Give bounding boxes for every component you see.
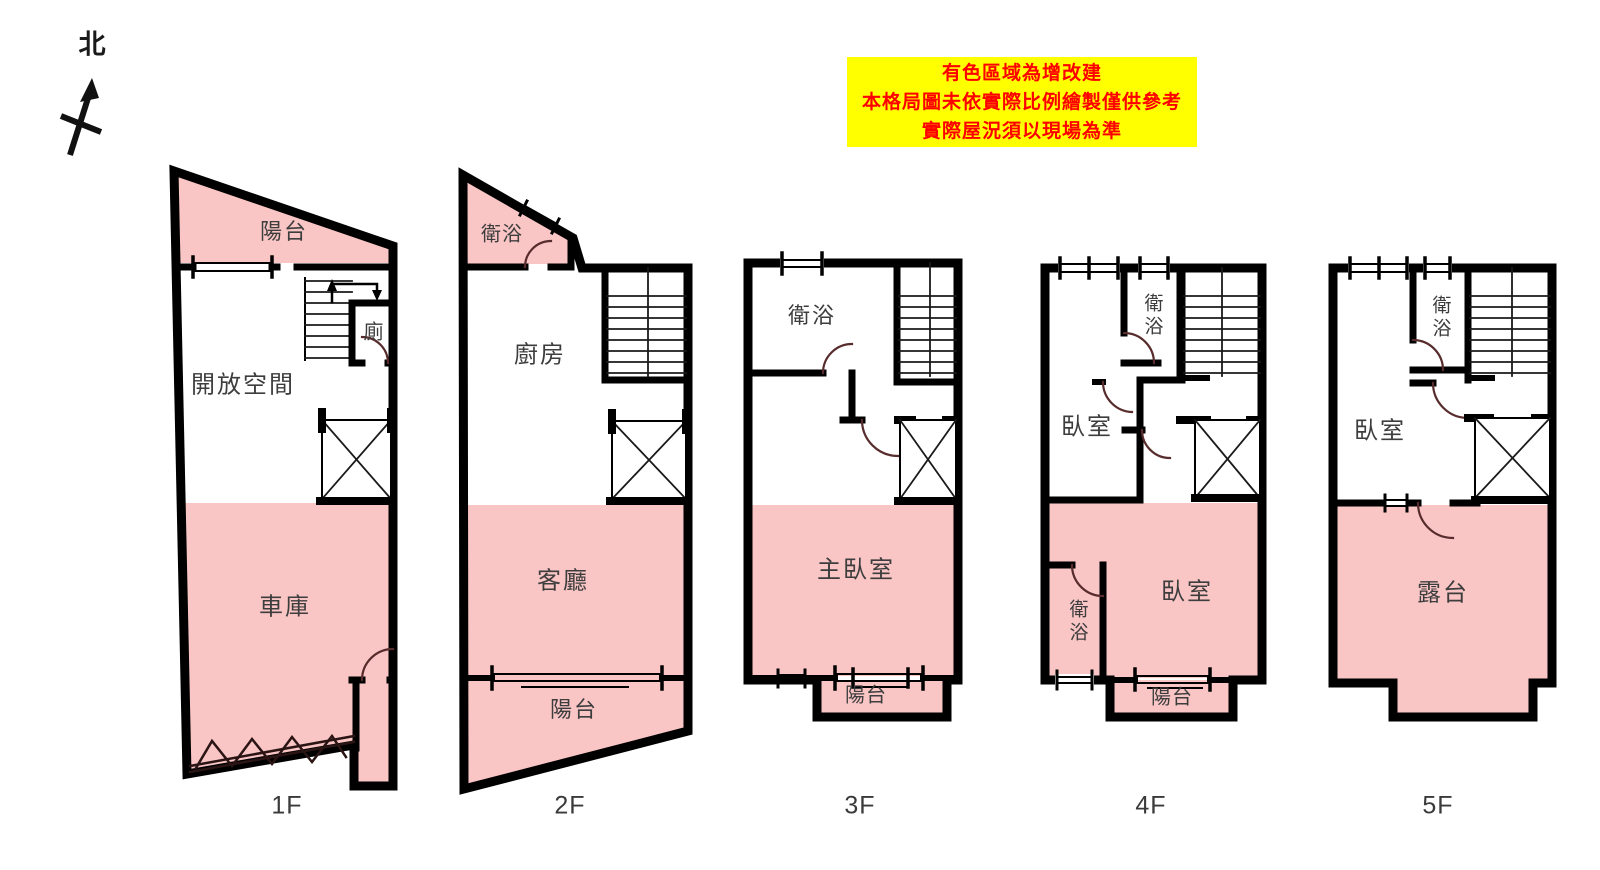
room-label-bedroom-4f: 臥室 — [1161, 572, 1213, 607]
floorplan-page: 北 有色區域為增改建 本格局圖未依實際比例繪製僅供參考 實際屋況須以現場為準 陽… — [0, 0, 1600, 870]
notice-line-1: 有色區域為增改建 — [942, 59, 1102, 88]
room-label-bath-5f: 衛浴 — [1427, 295, 1454, 341]
floor-label-4f: 4F — [1135, 792, 1166, 821]
room-label-terrace-5f: 露台 — [1417, 573, 1469, 608]
room-label-bedroom-top-4f: 臥室 — [1061, 407, 1113, 442]
floor-3f-plan — [748, 253, 958, 717]
room-label-kitchen-2f: 廚房 — [514, 335, 566, 370]
north-arrow-icon — [61, 78, 101, 155]
floor-1f-plan — [174, 171, 393, 786]
room-label-garage-1f: 車庫 — [259, 587, 311, 622]
room-label-balcony-4f: 陽台 — [1151, 681, 1193, 710]
room-label-master-bedroom-3f: 主臥室 — [817, 550, 895, 585]
notice-box: 有色區域為增改建 本格局圖未依實際比例繪製僅供參考 實際屋況須以現場為準 — [847, 57, 1197, 147]
room-label-living-2f: 客廳 — [537, 561, 589, 596]
room-label-toilet-1f: 廁 — [364, 316, 385, 345]
room-label-balcony-2f: 陽台 — [550, 692, 598, 724]
floor-label-3f: 3F — [844, 792, 875, 821]
room-label-bath-bottom-4f: 衛浴 — [1064, 599, 1091, 645]
north-label: 北 — [79, 23, 106, 62]
room-label-bath-3f: 衛浴 — [788, 298, 836, 330]
floor-label-2f: 2F — [554, 792, 585, 821]
notice-line-3: 實際屋況須以現場為準 — [922, 117, 1122, 146]
room-label-bedroom-5f: 臥室 — [1354, 411, 1406, 446]
floor-label-5f: 5F — [1422, 792, 1453, 821]
floor-label-1f: 1F — [271, 792, 302, 821]
room-label-open-space-1f: 開放空間 — [191, 365, 295, 400]
room-label-bath-2f: 衛浴 — [481, 218, 523, 247]
notice-line-2: 本格局圖未依實際比例繪製僅供參考 — [862, 88, 1182, 117]
room-label-bath-top-4f: 衛浴 — [1139, 293, 1166, 339]
room-label-balcony-1f: 陽台 — [260, 214, 308, 246]
room-label-balcony-3f: 陽台 — [845, 679, 887, 708]
